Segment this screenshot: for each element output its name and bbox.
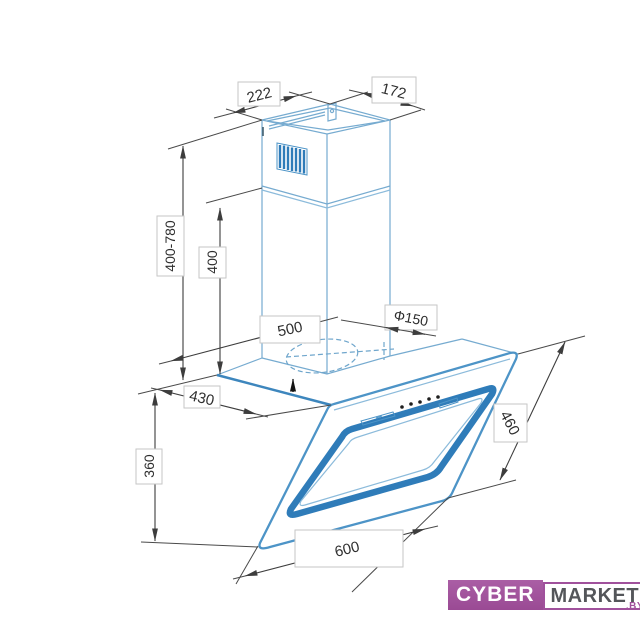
dimension-label-400: 400 — [204, 250, 220, 274]
dimension-label-360: 360 — [141, 454, 157, 478]
dimension-chimney-section-400: 400 — [199, 188, 262, 374]
dimension-body-height-360: 360 — [136, 393, 258, 547]
cooker-hood-dimension-drawing: 222 172 400-780 400 500 Φ — [0, 0, 640, 640]
angled-glass-panel — [259, 353, 516, 549]
dimension-duct-diameter-150: Φ150 — [341, 305, 437, 336]
dimension-depth-500: 500 — [159, 316, 338, 364]
domain-suffix: .BY — [626, 595, 640, 619]
brand-secondary-box: MARKET.BY — [543, 582, 640, 610]
dimension-chimney-depth-172: 172 — [330, 77, 425, 120]
dimension-body-width-600: 600 — [233, 498, 448, 592]
dimension-body-depth-430: 430 — [151, 386, 331, 419]
brand-primary-box: CYBER — [448, 580, 543, 610]
dimension-chimney-width-222: 222 — [214, 82, 330, 120]
dimension-label-400-780: 400-780 — [162, 220, 178, 272]
vent-grille — [277, 143, 307, 175]
technical-drawing-canvas: 222 172 400-780 400 500 Φ — [0, 0, 640, 640]
cybermarket-watermark: CYBER MARKET.BY — [448, 580, 640, 610]
